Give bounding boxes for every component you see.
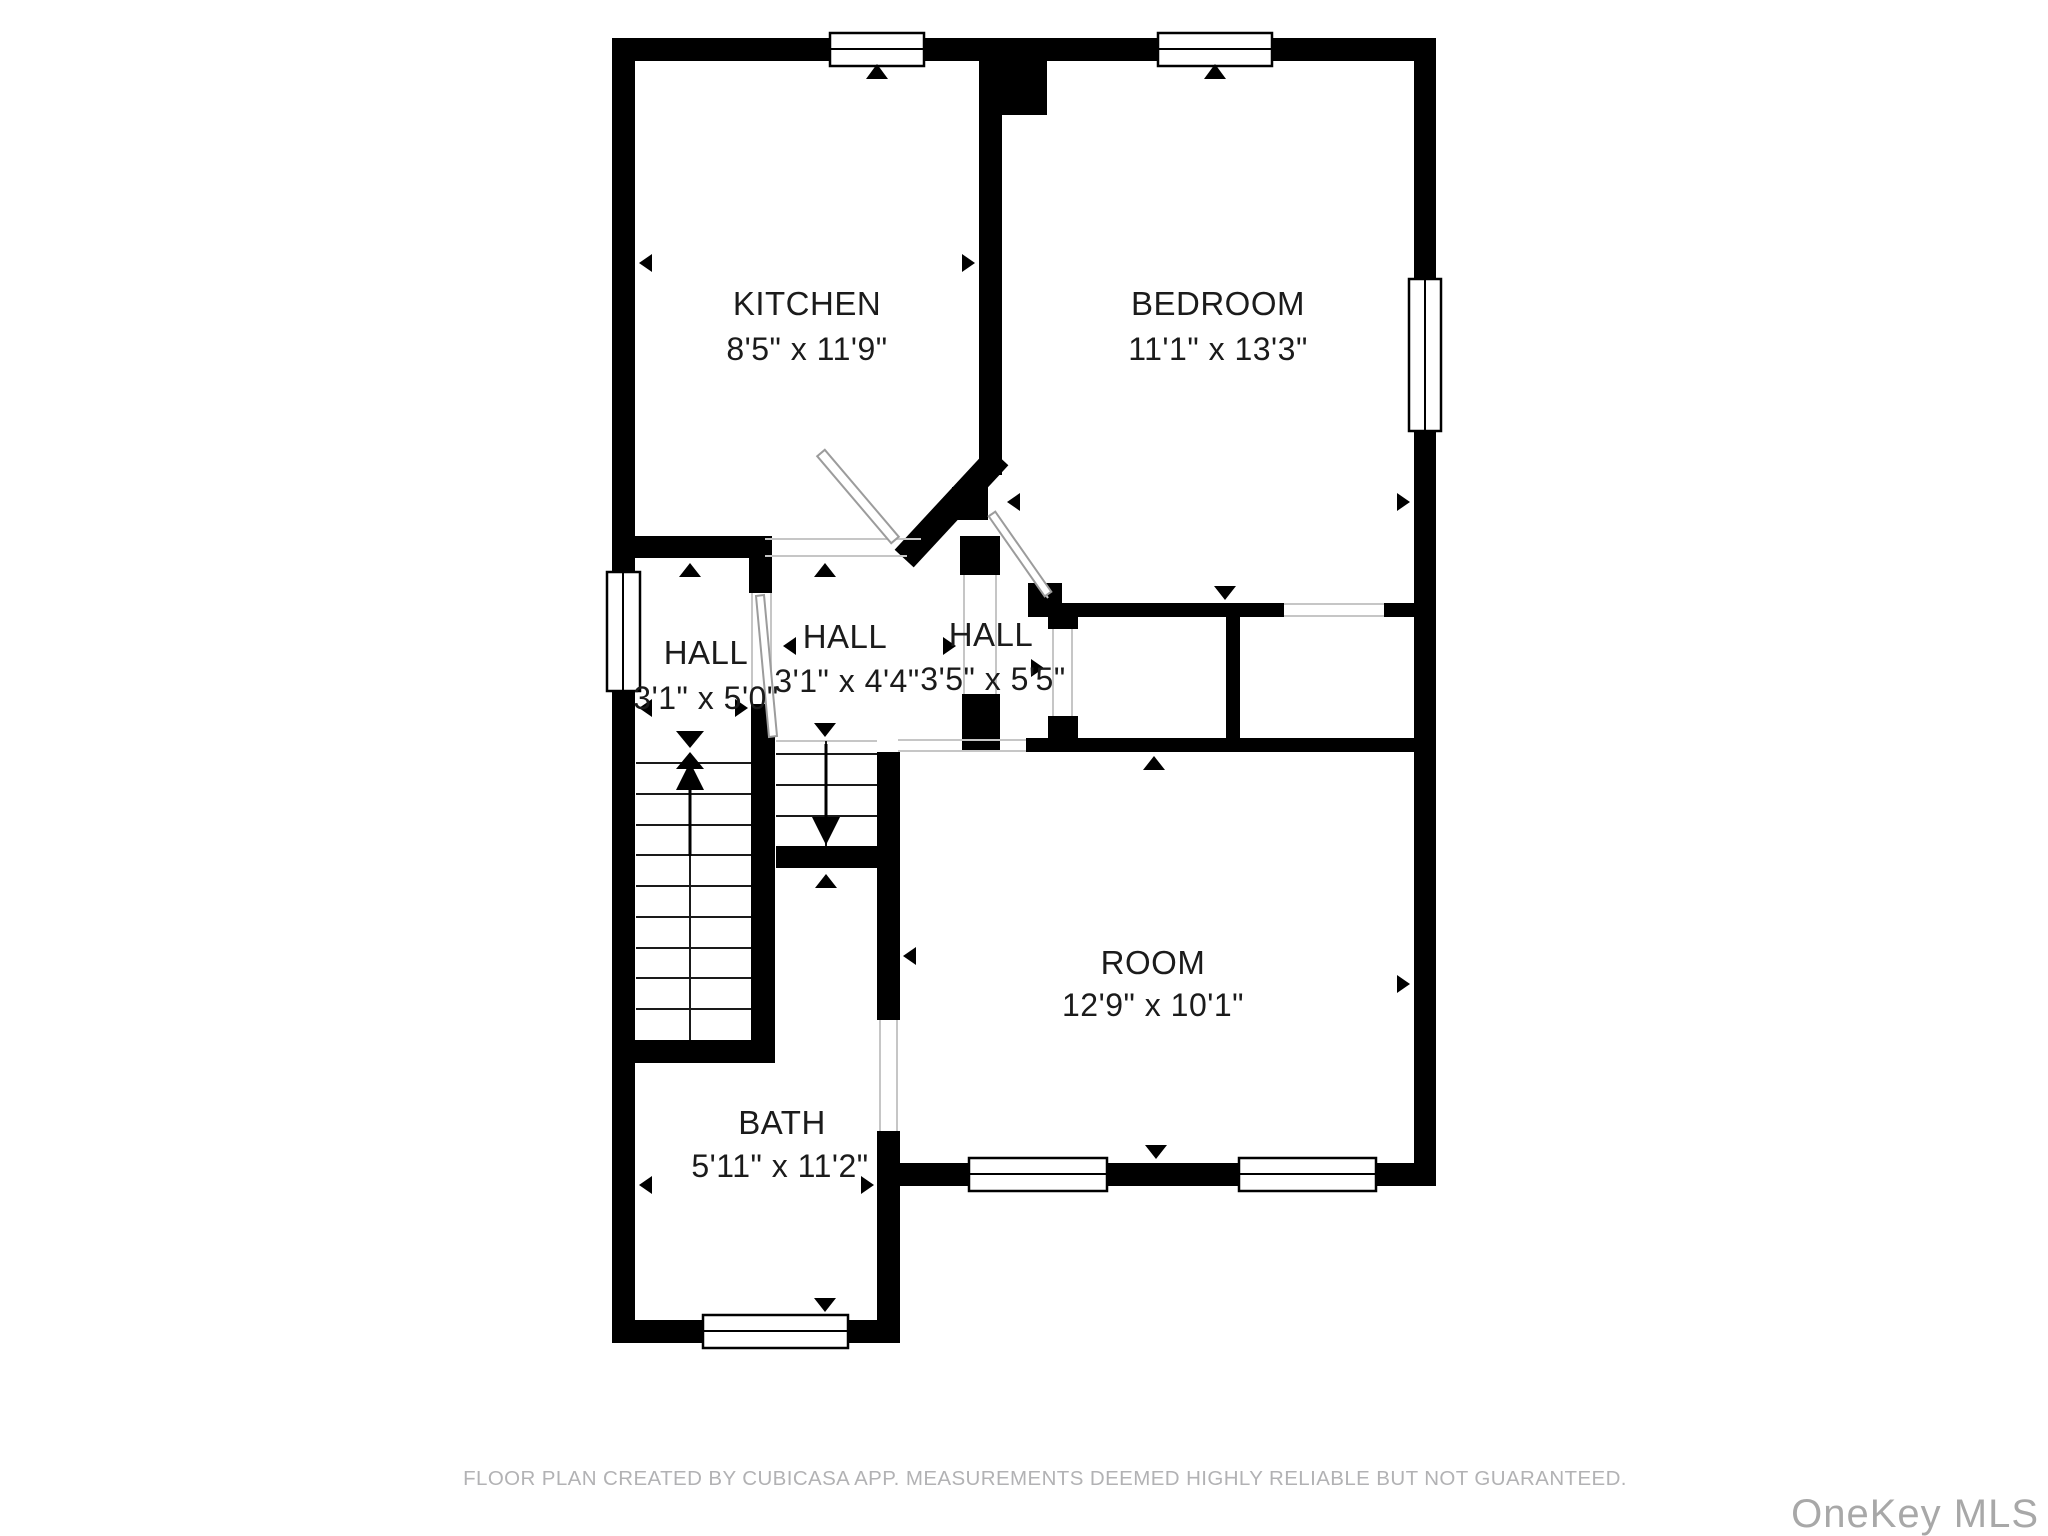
window-kitchen-top bbox=[830, 33, 924, 66]
floor-plan-page: KITCHEN 8'5" x 11'9" BEDROOM 11'1" x 13'… bbox=[0, 0, 2048, 1536]
window-hall-left bbox=[607, 572, 640, 691]
staircase-main bbox=[636, 731, 751, 1040]
room-label-kitchen: KITCHEN bbox=[733, 285, 881, 322]
window-bath-bottom bbox=[703, 1315, 848, 1348]
room-dims-bedroom: 11'1" x 13'3" bbox=[1128, 331, 1308, 367]
window-bedroom-top bbox=[1158, 33, 1272, 66]
room-dims-kitchen: 8'5" x 11'9" bbox=[726, 331, 887, 367]
room-dims-hall-middle: 3'1" x 4'4" bbox=[774, 663, 919, 699]
stairs-down-arrow bbox=[812, 817, 840, 845]
disclaimer-text: FLOOR PLAN CREATED BY CUBICASA APP. MEAS… bbox=[463, 1467, 1627, 1491]
room-label-hall-left: HALL bbox=[664, 634, 749, 671]
window-room-bottom-right bbox=[1239, 1158, 1376, 1191]
watermark-onekey-mls: OneKey MLS bbox=[1791, 1492, 2039, 1536]
room-label-bedroom: BEDROOM bbox=[1131, 285, 1305, 322]
room-label-bath: BATH bbox=[738, 1104, 826, 1141]
kitchen-door-leaf bbox=[817, 450, 899, 543]
room-dims-bath: 5'11" x 11'2" bbox=[691, 1148, 868, 1184]
room-dims-room: 12'9" x 10'1" bbox=[1062, 987, 1244, 1023]
room-label-hall-right: HALL bbox=[949, 616, 1034, 653]
room-dims-hall-left: 3'1" x 5'0" bbox=[633, 680, 778, 716]
window-bedroom-right bbox=[1409, 279, 1441, 431]
room-dims-hall-right: 3'5" x 5'5" bbox=[920, 661, 1065, 697]
room-label-room: ROOM bbox=[1101, 944, 1206, 981]
staircase-middle bbox=[776, 741, 877, 846]
floor-plan: KITCHEN 8'5" x 11'9" BEDROOM 11'1" x 13'… bbox=[0, 0, 2048, 1536]
window-room-bottom-left bbox=[969, 1158, 1107, 1191]
room-label-hall-middle: HALL bbox=[803, 618, 888, 655]
